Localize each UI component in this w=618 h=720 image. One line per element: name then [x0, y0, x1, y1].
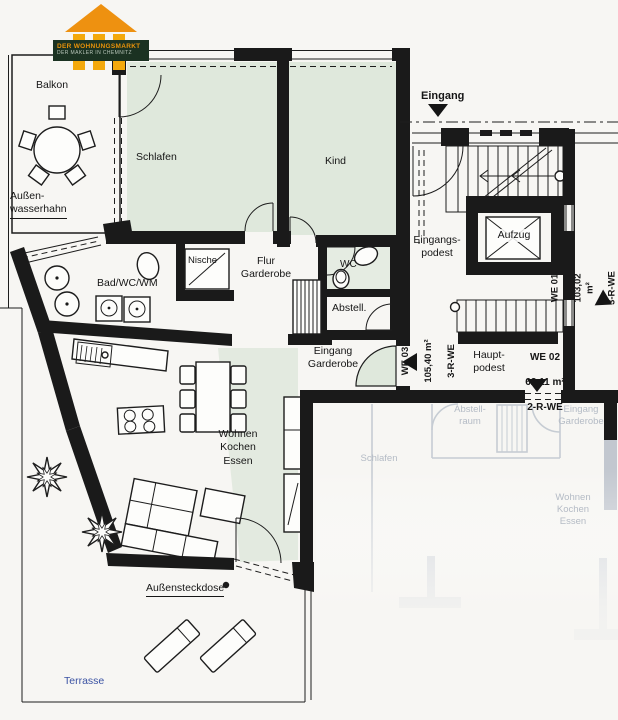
annotation-hauptpodest: Haupt- podest [473, 349, 505, 376]
room-label-kind: Kind [325, 155, 346, 168]
label-nische: Nische [188, 255, 217, 267]
logo-banner: DER WOHNUNGSMARKT DER MAKLER IN CHEMNITZ [53, 40, 149, 61]
we02-door-arrow-icon [527, 379, 547, 392]
room-label-wc: WC [340, 259, 357, 272]
label-aufzug: Aufzug [496, 229, 533, 242]
logo-tagline: DER WOHNUNGSMARKT [57, 43, 149, 50]
room-label-schlafen: Schlafen [136, 151, 177, 164]
room-label-balkon: Balkon [36, 79, 68, 92]
room-label-bad: Bad/WC/WM [97, 277, 158, 290]
room-label-abstell: Abstell. [332, 302, 366, 315]
annotation-eingangspodest: Eingangs- podest [413, 234, 460, 261]
faded-annotation-eingang-garderobe: Eingang Garderobe [558, 404, 603, 428]
agency-logo: DER WOHNUNGSMARKT DER MAKLER IN CHEMNITZ [53, 4, 149, 70]
floorplan-canvas: DER WOHNUNGSMARKT DER MAKLER IN CHEMNITZ… [0, 0, 618, 720]
logo-house-roof-icon [65, 4, 137, 32]
annotation-eingang-garderobe: Eingang Garderobe [308, 345, 358, 372]
logo-subtagline: DER MAKLER IN CHEMNITZ [57, 50, 149, 56]
entrance-arrow-icon [428, 104, 448, 117]
annotation-eingang: Eingang [421, 89, 464, 103]
faded-room-label-wohnen: Wohnen Kochen Essen [555, 492, 590, 528]
annotation-aussenwasserhahn: Außen- wasserhahn [10, 190, 67, 219]
faded-room-label-abstellraum: Abstell- raum [454, 404, 486, 428]
room-label-terrasse: Terrasse [64, 675, 104, 688]
annotation-aussensteckdose: Außensteckdose [146, 582, 224, 597]
faded-room-label-schlafen: Schlafen [361, 453, 398, 465]
room-label-flur-garderobe: Flur Garderobe [241, 255, 291, 282]
we03-door-arrow-icon [402, 353, 417, 371]
room-label-wohnen-kochen-essen: Wohnen Kochen Essen [219, 428, 258, 468]
